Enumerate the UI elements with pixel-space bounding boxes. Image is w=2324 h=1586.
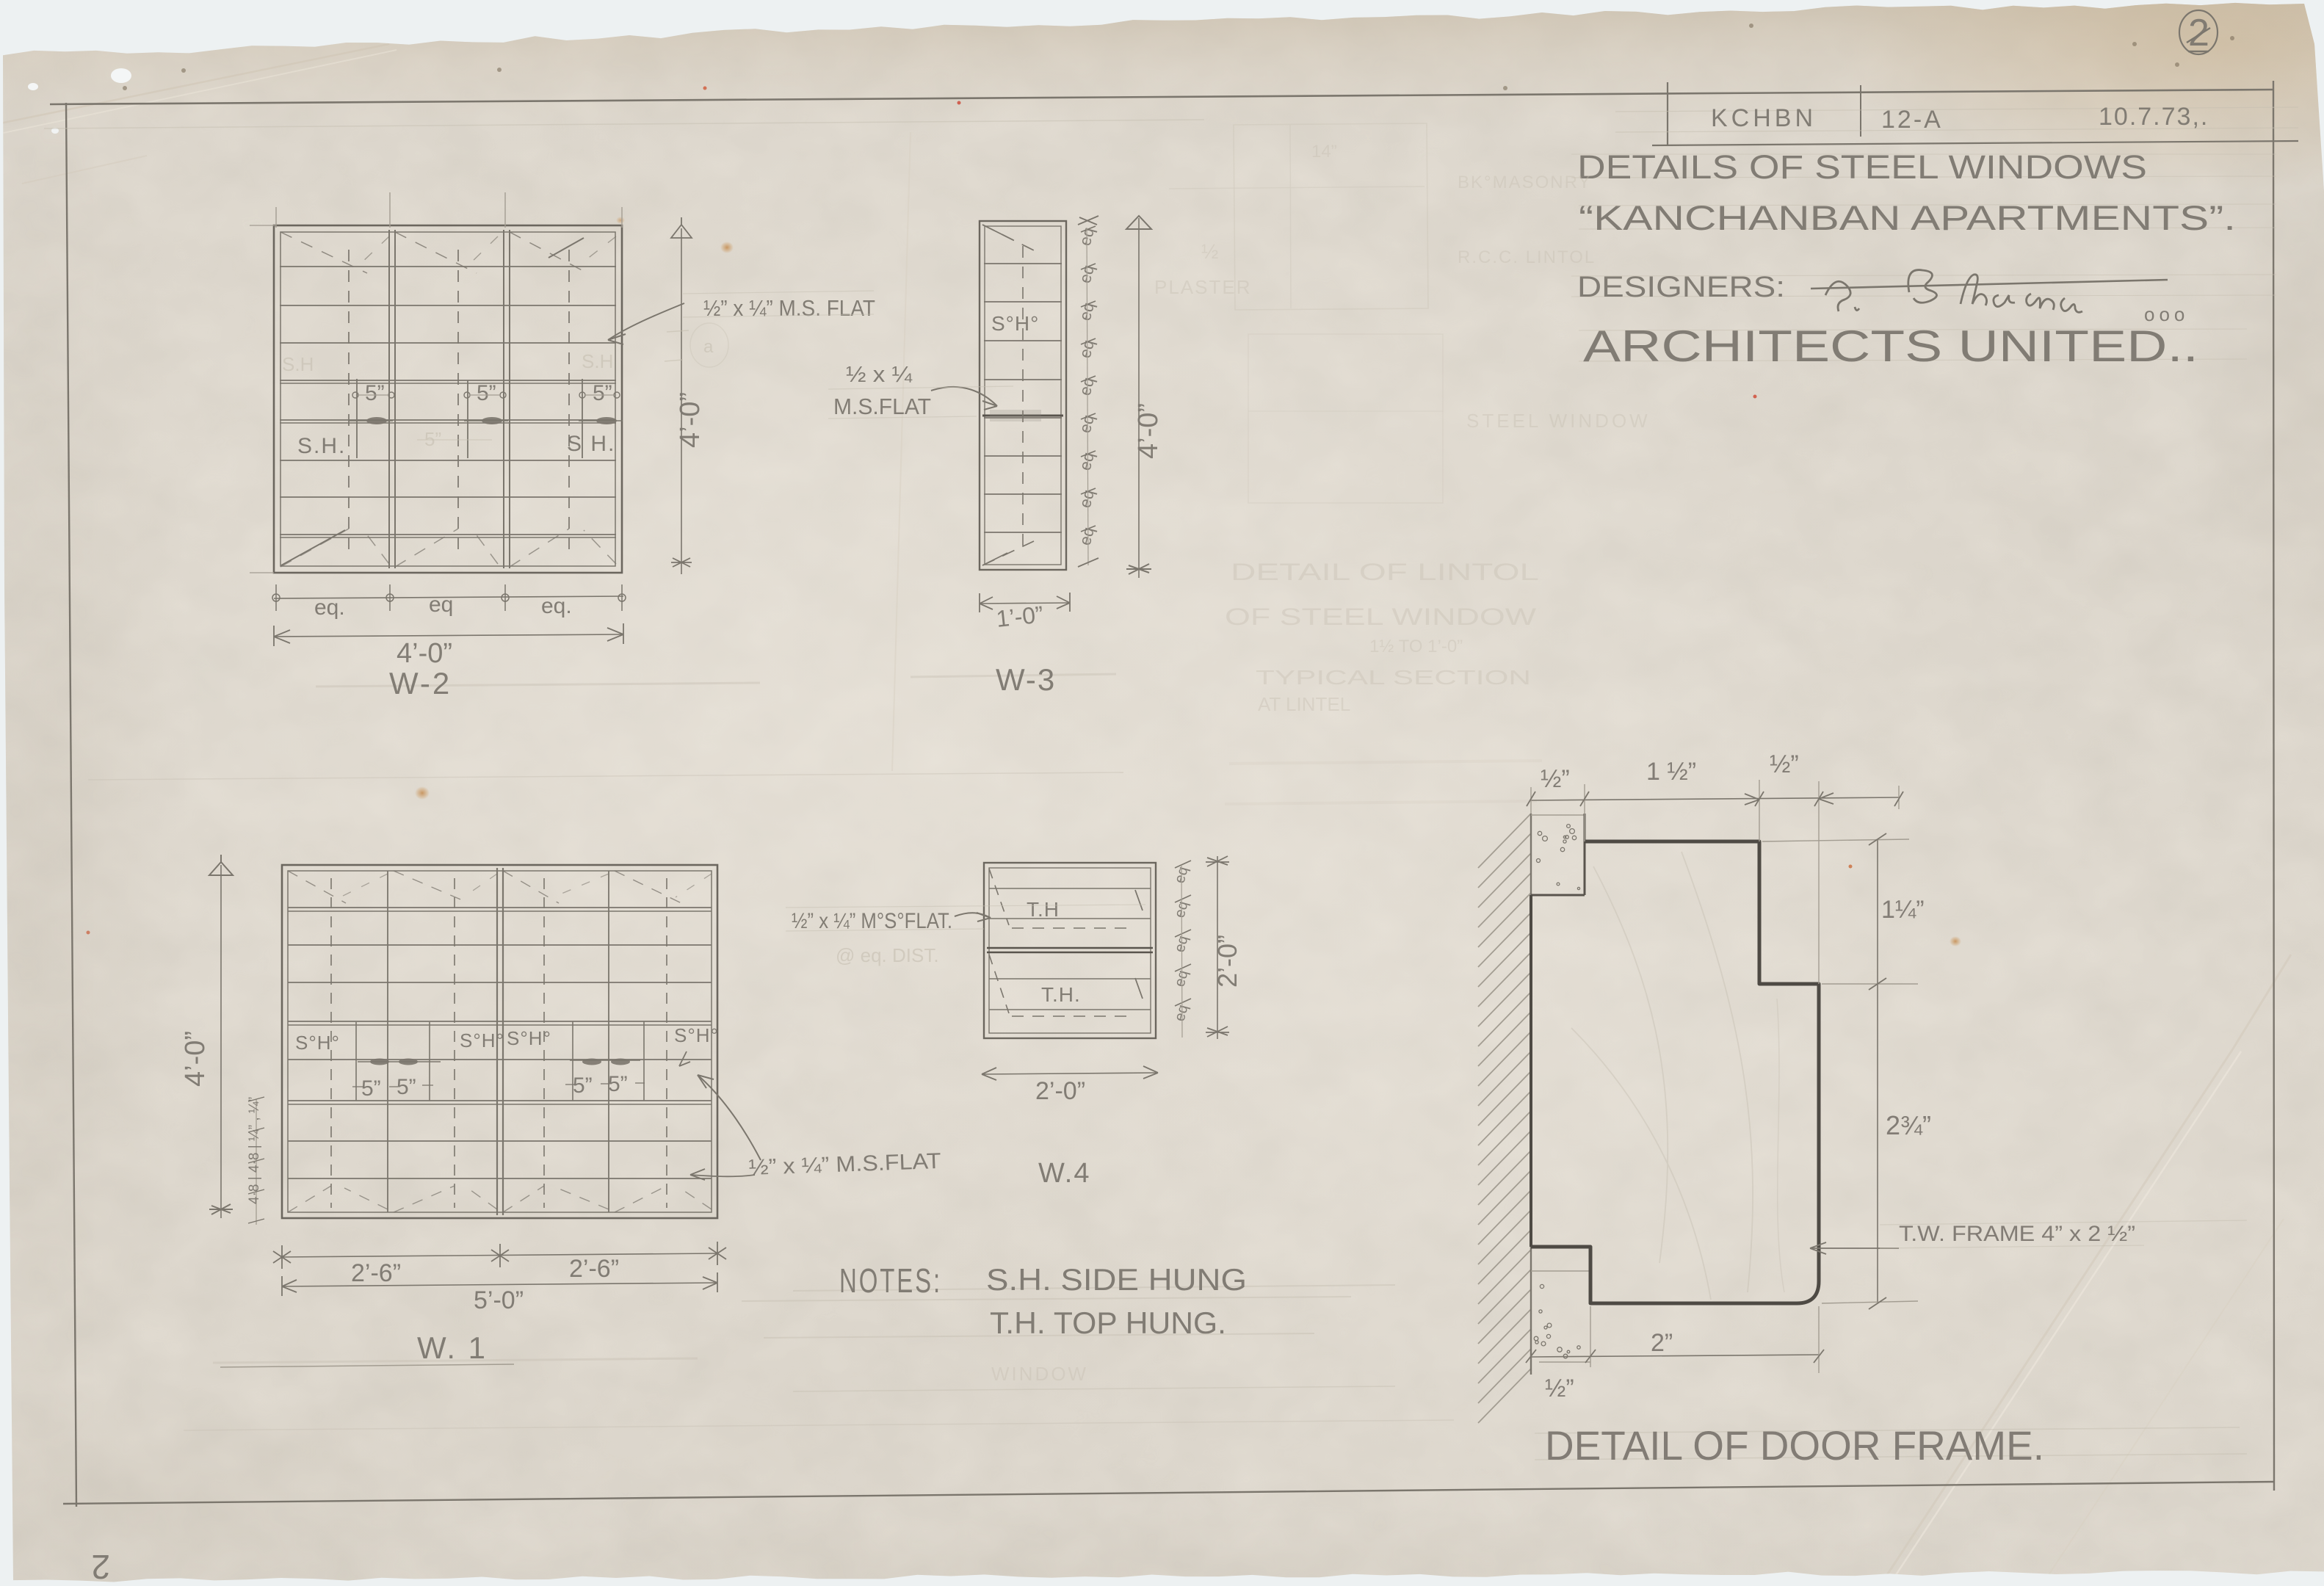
svg-text:S.H. SIDE HUNG: S.H. SIDE HUNG bbox=[986, 1262, 1247, 1297]
svg-text:M.S.FLAT: M.S.FLAT bbox=[833, 394, 931, 419]
svg-text:STEEL WINDOW: STEEL WINDOW bbox=[1466, 410, 1651, 432]
svg-text:T.W. FRAME 4” x 2 ½”: T.W. FRAME 4” x 2 ½” bbox=[1899, 1222, 2135, 1246]
svg-text:S.H: S.H bbox=[282, 353, 314, 375]
svg-text:4’-0”: 4’-0” bbox=[397, 638, 452, 669]
svg-text:DESIGNERS:: DESIGNERS: bbox=[1577, 271, 1785, 303]
svg-text:2’-0”: 2’-0” bbox=[1035, 1077, 1085, 1105]
svg-text:5”: 5” bbox=[573, 1073, 593, 1098]
svg-text:2: 2 bbox=[91, 1548, 110, 1586]
svg-text:KCHBN: KCHBN bbox=[1711, 104, 1817, 132]
svg-text:½: ½ bbox=[1201, 240, 1218, 263]
svg-text:1½ TO 1’-0”: 1½ TO 1’-0” bbox=[1369, 637, 1463, 656]
svg-text:1 ½”: 1 ½” bbox=[1646, 758, 1696, 786]
svg-text:DETAIL OF DOOR FRAME.: DETAIL OF DOOR FRAME. bbox=[1545, 1422, 2044, 1469]
svg-text:2’-6”: 2’-6” bbox=[351, 1259, 401, 1287]
svg-text:2’-6”: 2’-6” bbox=[569, 1255, 619, 1283]
svg-text:4’-0”: 4’-0” bbox=[180, 1031, 211, 1087]
svg-text:5”: 5” bbox=[424, 428, 441, 450]
svg-text:DETAILS OF STEEL WINDOWS: DETAILS OF STEEL WINDOWS bbox=[1577, 148, 2147, 186]
svg-text:NOTES:: NOTES: bbox=[839, 1261, 942, 1300]
svg-text:S.H.: S.H. bbox=[297, 434, 346, 458]
svg-text:TYPICAL SECTION: TYPICAL SECTION bbox=[1256, 666, 1531, 689]
svg-text:½ x ¼: ½ x ¼ bbox=[846, 361, 913, 387]
svg-text:½”: ½” bbox=[1545, 1375, 1574, 1402]
svg-text:ARCHITECTS UNITED..: ARCHITECTS UNITED.. bbox=[1583, 322, 2198, 371]
svg-text:5”: 5” bbox=[361, 1076, 381, 1101]
svg-text:2”: 2” bbox=[1651, 1329, 1673, 1357]
svg-text:5”: 5” bbox=[397, 1075, 416, 1099]
svg-text:W. 1: W. 1 bbox=[417, 1330, 488, 1365]
svg-text:5”: 5” bbox=[593, 381, 612, 405]
svg-text:S°H°: S°H° bbox=[460, 1029, 504, 1051]
svg-text:eq.: eq. bbox=[314, 595, 345, 620]
svg-text:1’-0”: 1’-0” bbox=[995, 601, 1044, 631]
svg-text:½” x ¼” M.S. FLAT: ½” x ¼” M.S. FLAT bbox=[703, 295, 875, 321]
svg-text:S°H°: S°H° bbox=[295, 1032, 340, 1054]
svg-text:5”: 5” bbox=[365, 381, 385, 405]
svg-text:T.H.: T.H. bbox=[1041, 983, 1081, 1006]
svg-text:10.7.73,.: 10.7.73,. bbox=[2099, 103, 2209, 131]
svg-text:4’-0”: 4’-0” bbox=[1133, 403, 1164, 459]
svg-text:1¼”: 1¼” bbox=[1881, 896, 1925, 924]
svg-text:½”: ½” bbox=[1770, 750, 1799, 778]
svg-text:R.C.C. LINTOL: R.C.C. LINTOL bbox=[1458, 247, 1596, 267]
svg-text:14”: 14” bbox=[1311, 142, 1337, 162]
svg-text:OF STEEL WINDOW: OF STEEL WINDOW bbox=[1225, 604, 1537, 630]
svg-text:4’-0”: 4’-0” bbox=[675, 392, 706, 448]
svg-text:S.H: S.H bbox=[582, 350, 613, 372]
svg-text:T.H: T.H bbox=[1027, 898, 1060, 921]
svg-text:@ eq. DIST.: @ eq. DIST. bbox=[836, 944, 939, 966]
svg-text:W-3: W-3 bbox=[996, 662, 1056, 697]
svg-text:PLASTER: PLASTER bbox=[1154, 276, 1252, 298]
svg-text:DETAIL OF LINTOL: DETAIL OF LINTOL bbox=[1231, 559, 1539, 585]
svg-text:4·8 | 4·8 | ¼” , ¼”: 4·8 | 4·8 | ¼” , ¼” bbox=[247, 1097, 262, 1204]
svg-text:12-A: 12-A bbox=[1881, 106, 1943, 134]
svg-text:W.4: W.4 bbox=[1038, 1158, 1090, 1189]
svg-text:WINDOW: WINDOW bbox=[991, 1363, 1088, 1385]
svg-text:5”: 5” bbox=[477, 381, 496, 405]
svg-text:“KANCHANBAN APARTMENTS”.: “KANCHANBAN APARTMENTS”. bbox=[1579, 198, 2236, 237]
svg-text:5”: 5” bbox=[608, 1072, 628, 1096]
svg-text:eq.: eq. bbox=[541, 594, 572, 618]
svg-text:½”: ½” bbox=[1541, 765, 1570, 793]
svg-text:2: 2 bbox=[2188, 12, 2209, 54]
svg-text:S H.: S H. bbox=[567, 432, 615, 456]
svg-text:S°H°: S°H° bbox=[991, 312, 1039, 335]
svg-text:2’-0”: 2’-0” bbox=[1212, 935, 1242, 988]
svg-text:5’-0”: 5’-0” bbox=[474, 1286, 524, 1314]
svg-text:S°H°: S°H° bbox=[674, 1024, 719, 1046]
svg-text:eq: eq bbox=[429, 593, 453, 617]
svg-text:BK°MASONRY: BK°MASONRY bbox=[1458, 173, 1592, 192]
svg-text:AT LINTEL: AT LINTEL bbox=[1258, 693, 1350, 715]
svg-text:W-2: W-2 bbox=[389, 666, 452, 700]
svg-text:S°H°: S°H° bbox=[507, 1027, 551, 1049]
svg-text:a: a bbox=[703, 337, 714, 357]
svg-text:2¾”: 2¾” bbox=[1886, 1110, 1931, 1140]
